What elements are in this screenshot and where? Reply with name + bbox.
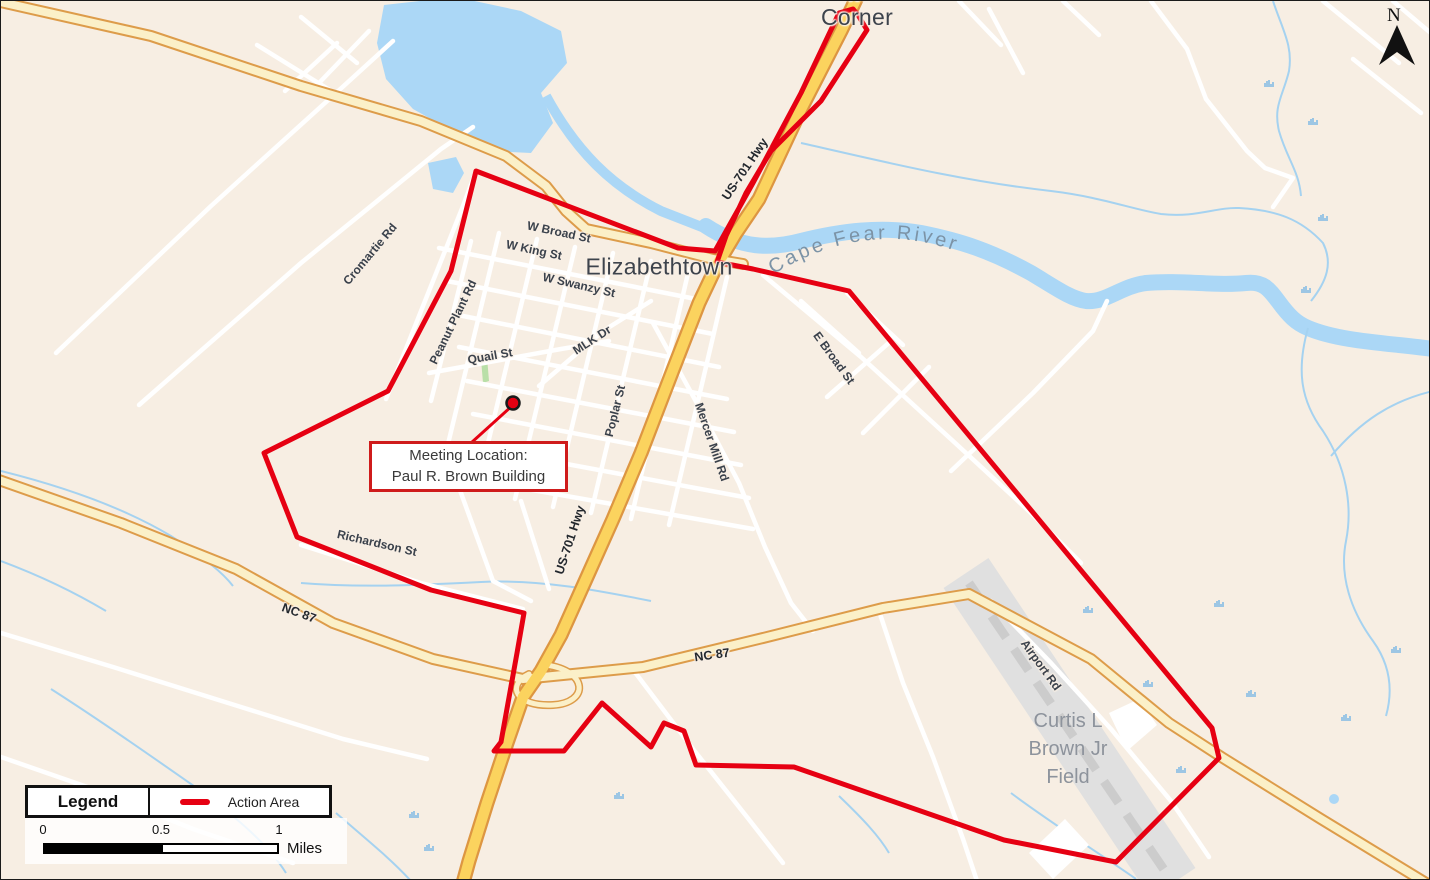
scale-bar: 0 0.5 1 Miles: [25, 818, 347, 864]
scale-tick-1: 1: [275, 822, 282, 837]
scale-unit-label: Miles: [287, 840, 322, 857]
map-figure: Cape Fear River Suttons Corner Elizabeth…: [0, 0, 1430, 880]
meeting-location-callout: Meeting Location: Paul R. Brown Building: [369, 441, 568, 492]
callout-line2: Paul R. Brown Building: [392, 467, 545, 487]
legend-item-label: Action Area: [228, 794, 300, 810]
callout-leader-line: [471, 405, 513, 443]
river-label: Cape Fear River: [765, 222, 962, 279]
legend-title: Legend: [28, 788, 150, 815]
map-canvas: Cape Fear River: [1, 1, 1430, 880]
highways-layer: [1, 1, 1426, 880]
legend: Legend Action Area: [25, 785, 332, 818]
callout-line1: Meeting Location:: [409, 446, 527, 466]
scale-bar-filled-segment: [43, 843, 161, 854]
scale-tick-05: 0.5: [152, 822, 170, 837]
meeting-location-dot: [507, 397, 520, 410]
legend-item-action-area: Action Area: [150, 788, 329, 815]
scale-tick-0: 0: [39, 822, 46, 837]
action-area-swatch-icon: [180, 799, 210, 805]
scale-bar-empty-segment: [161, 843, 279, 854]
